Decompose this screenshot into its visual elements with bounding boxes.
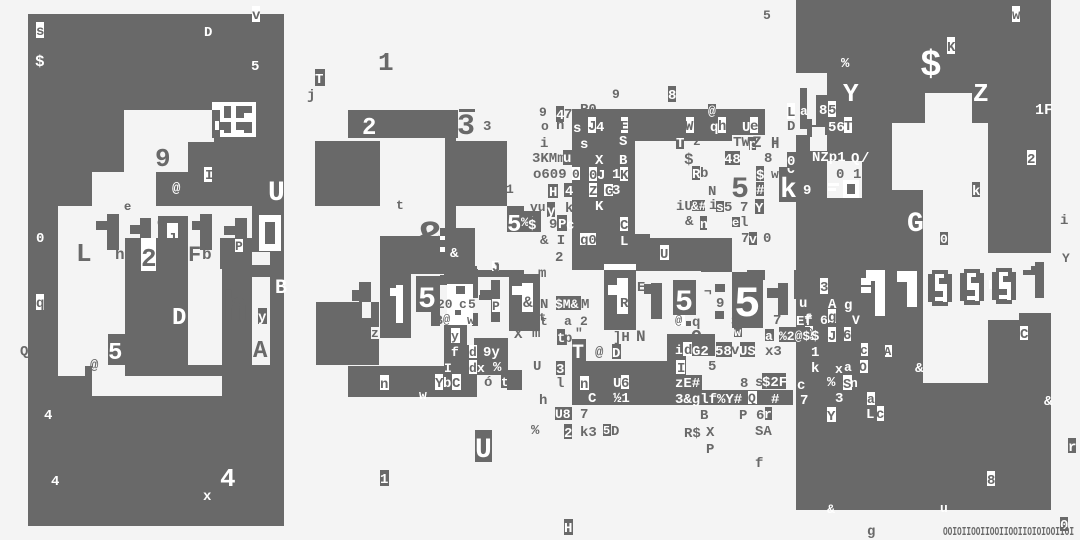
svg-text:P: P	[492, 299, 500, 314]
svg-text:Q: Q	[20, 344, 28, 360]
svg-text:s: s	[580, 137, 588, 153]
svg-text:n: n	[700, 217, 708, 232]
svg-text:L: L	[620, 234, 628, 250]
svg-text:y: y	[451, 329, 459, 344]
svg-text:&: &	[685, 214, 694, 230]
svg-text:@: @	[675, 314, 682, 328]
svg-text:3: 3	[835, 391, 843, 407]
svg-text:@: @	[595, 345, 604, 361]
svg-text:z: z	[371, 326, 379, 341]
svg-text:m: m	[538, 266, 546, 282]
svg-text:h: h	[115, 246, 125, 264]
svg-text:N: N	[540, 297, 548, 313]
svg-text:#: #	[771, 392, 779, 408]
svg-text:5: 5	[108, 340, 122, 367]
svg-text:9: 9	[539, 105, 547, 120]
svg-text:H: H	[771, 137, 779, 153]
svg-text:Y: Y	[843, 79, 859, 109]
svg-text:e: e	[732, 216, 739, 230]
svg-text:2: 2	[1027, 152, 1035, 168]
svg-text:k: k	[972, 184, 980, 200]
svg-text:g: g	[844, 298, 852, 314]
svg-text:v: v	[252, 8, 261, 24]
svg-text:56: 56	[828, 120, 845, 136]
svg-text:i: i	[540, 136, 548, 152]
svg-text:0: 0	[940, 232, 948, 247]
svg-text:7: 7	[564, 107, 572, 123]
svg-text:B: B	[275, 277, 287, 300]
svg-text:&: &	[915, 361, 924, 377]
svg-text:0: 0	[36, 231, 44, 247]
svg-text:58: 58	[715, 344, 732, 360]
svg-text:b: b	[202, 246, 212, 264]
svg-text:l: l	[740, 215, 748, 231]
svg-text:O: O	[859, 360, 867, 375]
svg-text:q: q	[36, 296, 44, 312]
svg-text:$: $	[756, 168, 764, 184]
svg-text:I: I	[205, 168, 213, 184]
svg-text:D: D	[172, 305, 186, 332]
svg-text:8: 8	[740, 376, 748, 392]
svg-text:5: 5	[603, 424, 610, 438]
svg-text:6: 6	[621, 376, 629, 392]
svg-text:4: 4	[51, 474, 59, 490]
svg-text:P: P	[706, 442, 714, 458]
svg-text:&: &	[523, 294, 533, 312]
svg-text:i: i	[675, 343, 683, 358]
svg-text:2: 2	[564, 426, 572, 442]
svg-text:b: b	[700, 166, 708, 182]
svg-text:D: D	[611, 424, 619, 440]
svg-text:4: 4	[565, 184, 573, 200]
svg-text:I: I	[677, 361, 685, 377]
svg-text:g0: g0	[580, 233, 597, 249]
svg-text:3: 3	[457, 110, 475, 144]
svg-text:R: R	[620, 296, 629, 312]
svg-text:@: @	[172, 181, 181, 197]
svg-text:$: $	[920, 45, 942, 86]
svg-text:&: &	[827, 502, 835, 517]
svg-text:3: 3	[612, 183, 620, 199]
svg-text:0: 0	[572, 167, 580, 182]
svg-text:4: 4	[44, 408, 52, 424]
svg-text:x: x	[835, 362, 843, 377]
svg-text:vu: vu	[530, 200, 546, 215]
svg-text:2: 2	[580, 314, 588, 329]
svg-text:6: 6	[820, 313, 828, 328]
svg-text:a: a	[867, 392, 875, 407]
svg-text:k: k	[811, 361, 819, 377]
svg-text:OOIOIIOOIIOOIIOOIIOIOIOOIIOI: OOIOIIOOIIOOIIOOIIOIOIOOIIOI	[943, 525, 1074, 539]
svg-text:K: K	[620, 168, 629, 184]
svg-text:2: 2	[555, 250, 563, 266]
svg-text:0: 0	[763, 231, 771, 247]
svg-text:0: 0	[787, 154, 795, 170]
svg-text:c: c	[566, 218, 574, 234]
svg-text:½1: ½1	[613, 391, 630, 407]
svg-text:5: 5	[763, 8, 771, 23]
svg-text:9: 9	[803, 183, 811, 199]
svg-text:p: p	[564, 331, 572, 347]
svg-text:I: I	[444, 361, 452, 376]
svg-text:w: w	[419, 388, 427, 403]
svg-text:c: c	[860, 343, 868, 358]
svg-text:3: 3	[820, 280, 828, 296]
svg-text:s: s	[716, 200, 724, 215]
svg-text:3: 3	[483, 119, 491, 135]
svg-text:¬: ¬	[704, 284, 712, 299]
svg-text:1: 1	[506, 182, 514, 197]
svg-text:d: d	[469, 361, 477, 376]
svg-text:B: B	[700, 408, 709, 424]
svg-text:w: w	[1012, 8, 1021, 24]
svg-text:1: 1	[811, 345, 819, 361]
svg-text:5: 5	[828, 103, 836, 119]
svg-text:D: D	[612, 346, 620, 362]
svg-text:h: h	[718, 119, 726, 135]
svg-text:/: /	[861, 151, 869, 167]
svg-text:TW: TW	[733, 135, 750, 151]
svg-text:8: 8	[764, 151, 772, 167]
svg-text:l: l	[556, 376, 564, 392]
svg-text:1F: 1F	[1035, 102, 1053, 119]
svg-text:T: T	[844, 119, 852, 135]
svg-text:U8: U8	[555, 407, 571, 422]
svg-text:P: P	[739, 408, 747, 424]
svg-text:k: k	[780, 175, 797, 206]
svg-text:8: 8	[819, 103, 827, 119]
svg-text:3KMm: 3KMm	[532, 151, 566, 167]
svg-text:@: @	[443, 313, 450, 327]
svg-text:V: V	[852, 313, 860, 328]
svg-text:C: C	[620, 218, 629, 234]
svg-text:1: 1	[380, 472, 388, 488]
svg-text:9: 9	[716, 296, 724, 312]
svg-text:C: C	[1020, 327, 1029, 343]
svg-text:9: 9	[155, 144, 171, 174]
svg-text:5: 5	[251, 59, 259, 75]
svg-text:u: u	[563, 151, 571, 167]
svg-text:Y: Y	[827, 409, 836, 425]
svg-text:G: G	[907, 209, 924, 240]
svg-text:A: A	[253, 338, 268, 365]
svg-text:$: $	[731, 314, 739, 330]
svg-text:t: t	[396, 198, 404, 213]
svg-text:&: &	[1044, 394, 1053, 410]
svg-text:d: d	[157, 215, 165, 230]
svg-text:J: J	[828, 329, 836, 345]
svg-text:d: d	[469, 345, 477, 360]
svg-text:x: x	[477, 361, 485, 376]
svg-text:D: D	[204, 25, 212, 41]
svg-text:R$: R$	[684, 426, 701, 442]
svg-text:a: a	[765, 329, 773, 344]
svg-text:R0: R0	[580, 102, 597, 118]
svg-text:J: J	[493, 262, 500, 276]
svg-text:9y: 9y	[483, 345, 500, 361]
svg-text:r: r	[764, 407, 772, 422]
svg-text:5: 5	[468, 297, 476, 312]
svg-text:5: 5	[724, 200, 732, 216]
svg-text:s: s	[573, 121, 581, 137]
svg-text:g: g	[828, 310, 836, 326]
svg-text:n: n	[380, 377, 388, 393]
svg-text:T: T	[315, 72, 323, 88]
svg-text:X: X	[595, 153, 604, 169]
svg-text:& I: & I	[540, 233, 565, 249]
svg-text:8: 8	[987, 473, 995, 489]
svg-text:a: a	[564, 314, 572, 329]
svg-text:20: 20	[437, 297, 453, 312]
svg-text:a: a	[844, 360, 852, 375]
svg-text:B: B	[435, 313, 443, 328]
svg-text:$: $	[35, 53, 45, 71]
svg-text:5: 5	[418, 283, 436, 317]
svg-text:NZp1: NZp1	[812, 150, 846, 166]
svg-text:X: X	[514, 327, 523, 343]
svg-text:G2: G2	[692, 344, 709, 360]
svg-text:u: u	[799, 296, 807, 312]
svg-text:9: 9	[612, 87, 620, 102]
svg-text:4: 4	[596, 120, 604, 136]
svg-text:Z: Z	[752, 134, 762, 152]
svg-text:j: j	[307, 88, 315, 104]
svg-text:3&glf%Y#: 3&glf%Y#	[675, 392, 742, 408]
svg-text:Y: Y	[1062, 251, 1070, 266]
svg-text:i: i	[1060, 213, 1068, 229]
svg-text:o: o	[541, 119, 549, 134]
svg-text:48: 48	[724, 152, 741, 168]
svg-text:F: F	[188, 243, 201, 268]
svg-text:T: T	[676, 136, 684, 152]
svg-text:U: U	[475, 435, 492, 466]
svg-text:$M&: $M&	[555, 297, 579, 312]
svg-text:4: 4	[220, 464, 236, 494]
svg-text:e: e	[124, 200, 131, 214]
svg-text:c: c	[876, 407, 884, 423]
svg-text:#: #	[756, 183, 764, 199]
svg-text:7: 7	[773, 313, 781, 329]
svg-text:J: J	[597, 168, 605, 184]
svg-text:h: h	[539, 393, 547, 409]
svg-text:7: 7	[580, 407, 588, 423]
svg-text:U: U	[268, 178, 285, 209]
svg-text:N: N	[636, 328, 646, 346]
svg-text:L: L	[76, 239, 92, 269]
svg-text:a: a	[800, 104, 808, 119]
svg-text:x: x	[203, 489, 212, 505]
svg-text:7: 7	[740, 200, 748, 216]
svg-text:L: L	[866, 407, 874, 423]
svg-text:K: K	[595, 199, 604, 215]
svg-text:A: A	[884, 345, 892, 359]
svg-text:2: 2	[362, 115, 376, 142]
svg-text:5: 5	[708, 359, 716, 375]
svg-text:6: 6	[843, 328, 851, 344]
svg-text:h: h	[556, 118, 564, 134]
svg-text:v: v	[749, 232, 757, 247]
svg-text:M: M	[581, 297, 589, 313]
svg-text:Q: Q	[851, 151, 859, 167]
svg-text:u: u	[940, 501, 948, 516]
svg-text:K: K	[947, 40, 956, 56]
svg-text:1: 1	[378, 48, 394, 78]
svg-text:U: U	[660, 247, 668, 263]
svg-text:$: $	[811, 329, 819, 345]
svg-text:ó: ó	[484, 375, 492, 391]
svg-text:US: US	[739, 344, 756, 360]
svg-text:9: 9	[549, 217, 557, 233]
svg-text:t: t	[540, 314, 548, 329]
svg-text:Q: Q	[748, 391, 756, 406]
svg-text:&: &	[450, 246, 459, 262]
svg-text:%: %	[493, 360, 502, 376]
svg-text:w: w	[467, 313, 475, 328]
svg-text:P: P	[235, 239, 243, 254]
svg-text:g: g	[867, 524, 875, 540]
svg-text:c: c	[797, 378, 805, 394]
svg-text:r: r	[1068, 440, 1076, 456]
svg-text:5: 5	[507, 212, 521, 239]
svg-text:C: C	[588, 391, 597, 407]
svg-text:Y: Y	[755, 201, 764, 217]
svg-text:&#: &#	[691, 199, 707, 214]
svg-text:H: H	[564, 521, 572, 537]
svg-text:U: U	[533, 359, 541, 375]
svg-text:S: S	[619, 134, 627, 150]
svg-text:Z: Z	[589, 184, 597, 200]
svg-text:o609: o609	[533, 167, 567, 183]
svg-text:%: %	[827, 375, 836, 391]
svg-text:$: $	[528, 218, 536, 234]
svg-text:]H: ]H	[613, 330, 630, 346]
svg-text:x3: x3	[765, 344, 782, 360]
svg-text:w: w	[771, 167, 779, 182]
svg-text:%2@$: %2@$	[779, 329, 810, 344]
svg-text:y: y	[258, 310, 267, 326]
svg-text:D: D	[787, 119, 795, 135]
svg-text:$2F: $2F	[762, 375, 787, 391]
svg-text:n: n	[850, 376, 858, 391]
svg-text:c: c	[459, 297, 467, 312]
svg-text:h: h	[223, 285, 248, 333]
svg-text:b: b	[443, 376, 451, 392]
svg-text:H: H	[549, 185, 557, 201]
svg-text:f: f	[451, 345, 459, 360]
svg-text:C: C	[452, 376, 461, 392]
svg-text:2: 2	[141, 244, 157, 274]
svg-text:k3: k3	[580, 425, 597, 441]
svg-text:e: e	[620, 106, 628, 121]
svg-text:Z: Z	[973, 79, 989, 109]
svg-text:z: z	[693, 134, 701, 149]
svg-text:%: %	[841, 56, 850, 72]
svg-text:SA: SA	[755, 424, 772, 440]
svg-text:s: s	[36, 24, 44, 40]
svg-text:X: X	[706, 425, 715, 441]
svg-text:f: f	[755, 456, 763, 472]
svg-text:W: W	[685, 119, 694, 135]
svg-text:@: @	[708, 104, 716, 119]
svg-text:k: k	[565, 201, 573, 217]
svg-text:zE#: zE#	[675, 376, 700, 392]
svg-text:8: 8	[668, 88, 676, 104]
svg-text:e: e	[750, 119, 758, 135]
svg-text:%: %	[531, 423, 540, 439]
svg-text:7: 7	[800, 393, 808, 409]
svg-text:E: E	[620, 119, 628, 135]
